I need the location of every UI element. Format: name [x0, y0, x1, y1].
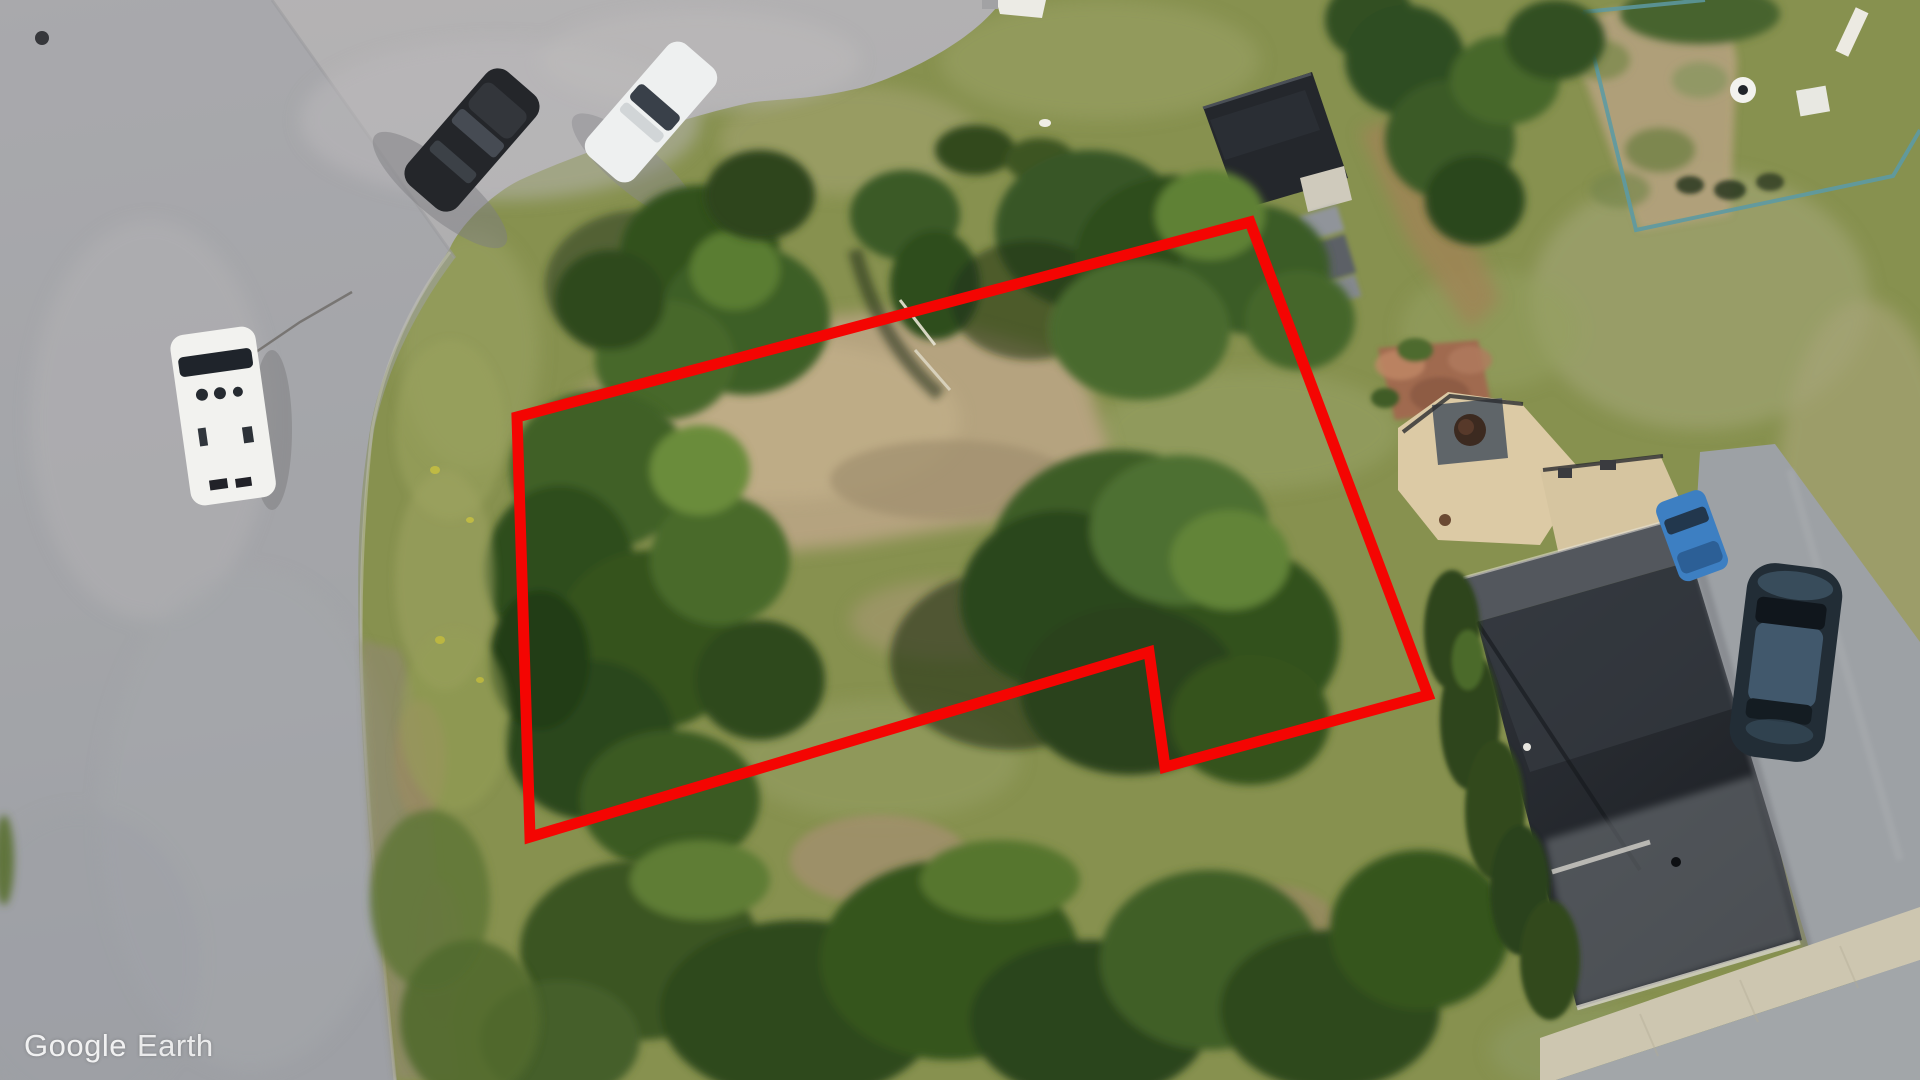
manhole-dot	[35, 31, 49, 45]
white-speck	[1039, 119, 1051, 127]
google-earth-watermark: GoogleEarth	[24, 1028, 214, 1064]
roof-vent	[1523, 743, 1531, 751]
hot-tub-inner	[1458, 419, 1474, 435]
gray-structure-edge	[982, 0, 998, 9]
google-earth-map-canvas[interactable]: GoogleEarth	[0, 0, 1920, 1080]
roof-dark-vent	[1671, 857, 1681, 867]
aerial-imagery	[0, 0, 1920, 1080]
watermark-product: Earth	[137, 1028, 214, 1063]
deck-pot	[1439, 514, 1451, 526]
watermark-brand: Google	[24, 1028, 127, 1063]
deck-object-1	[1558, 468, 1572, 478]
white-pad	[1796, 86, 1830, 117]
bottom-tree-row	[480, 840, 1510, 1080]
well-cover-center	[1738, 85, 1748, 95]
deck-object-2	[1600, 460, 1616, 470]
